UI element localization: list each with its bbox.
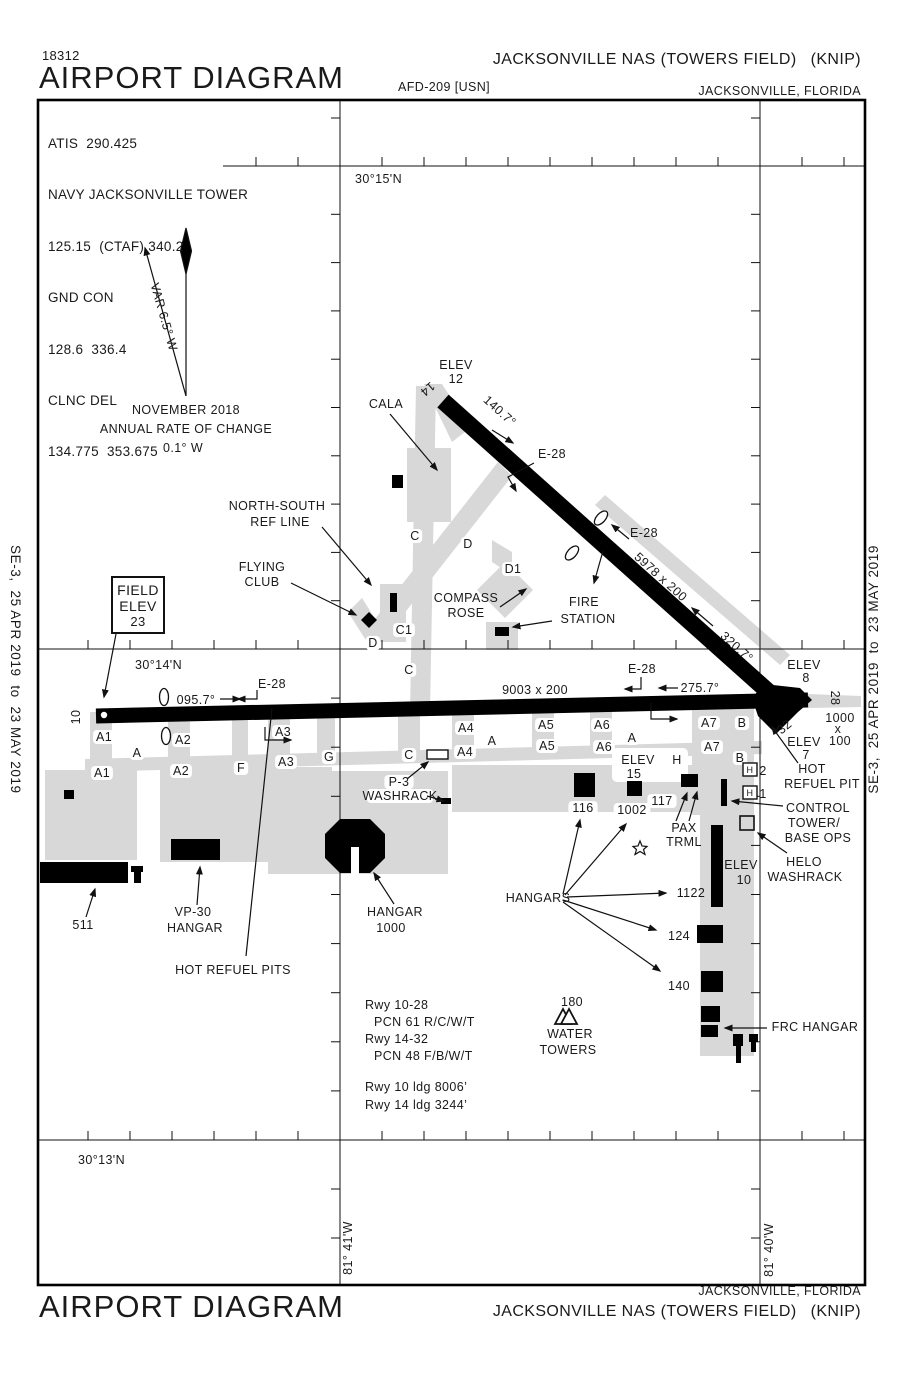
building-511 — [40, 862, 128, 883]
label-rwy-data-6: Rwy 14 ldg 3244’ — [365, 1098, 467, 1112]
footer-airport-name: JACKSONVILLE NAS (TOWERS FIELD) — [493, 1303, 797, 1320]
label-twy-d-s: D — [368, 636, 377, 650]
building-511-annex — [131, 866, 143, 872]
small-building — [64, 790, 74, 799]
label-twy-a7-u: A7 — [701, 716, 717, 730]
label-cala: CALA — [369, 397, 404, 411]
comm-line-clnc-label: CLNC DEL — [48, 393, 248, 408]
label-bldg-511: 511 — [72, 918, 93, 932]
label-elev8-2: 8 — [802, 671, 809, 685]
building-140 — [701, 971, 723, 992]
label-rwy-data-4: PCN 48 F/B/W/T — [374, 1049, 473, 1063]
label-rwy-data-5: Rwy 10 ldg 8006’ — [365, 1080, 467, 1094]
hangar-1000-arrow — [374, 873, 394, 904]
label-lat-30-15: 30°15'N — [355, 172, 402, 186]
label-ctl-3: BASE OPS — [785, 831, 851, 845]
comm-line-gnd-label: GND CON — [48, 290, 248, 305]
label-overrun-3: 100 — [829, 734, 851, 748]
label-hangar1000-2: 1000 — [376, 921, 405, 935]
label-rwy-num-28: 28 — [828, 691, 842, 706]
label-twy-c-n: C — [410, 529, 419, 543]
label-bldg-140: 140 — [668, 979, 690, 993]
label-ns-ref-2: REF LINE — [250, 515, 309, 529]
label-hdg-095: 095.7° — [177, 693, 216, 707]
label-hpad-2: 2 — [759, 764, 766, 778]
label-lon-81-40: 81° 40'W — [762, 1223, 776, 1277]
frc-hangar-building — [701, 1006, 720, 1022]
label-bldg-124: 124 — [668, 929, 690, 943]
hangars-arrow-116 — [563, 820, 580, 894]
label-p3-1: P-3 — [389, 775, 410, 789]
e28-west-bracket — [238, 690, 257, 699]
label-ctl-1: CONTROL — [786, 801, 850, 815]
label-lat-30-14: 30°14'N — [135, 658, 182, 672]
label-hpad-h1: H — [747, 788, 754, 798]
label-flying-club-2: CLUB — [245, 575, 280, 589]
label-wt-180: 180 — [561, 995, 583, 1009]
effective-dates-right: SE-3, 25 APR 2019 to 23 MAY 2019 — [866, 545, 881, 794]
label-twy-a5-l: A5 — [539, 739, 555, 753]
label-p3-2: WASHRACK — [363, 789, 438, 803]
comm-line-tower-name: NAVY JACKSONVILLE TOWER — [48, 187, 248, 202]
hangars-arrow-1122 — [567, 893, 666, 897]
label-bldg-1122: 1122 — [677, 886, 705, 900]
footer-airport-code: (KNIP) — [811, 1303, 861, 1320]
label-rwy-data-2: PCN 61 R/C/W/T — [374, 1015, 475, 1029]
airport-diagram-page: 18312 AIRPORT DIAGRAM AFD-209 [USN] JACK… — [0, 0, 903, 1386]
label-lon-81-41: 81° 41'W — [341, 1221, 355, 1275]
label-e28-rwy14-hi: E-28 — [538, 447, 566, 461]
label-compass-2: ROSE — [447, 606, 484, 620]
label-bldg-117: 117 — [651, 794, 672, 808]
footer-airport-title: JACKSONVILLE NAS (TOWERS FIELD)(KNIP) — [493, 1303, 861, 1321]
label-helo-1: HELO — [786, 855, 822, 869]
afd-reference: AFD-209 [USN] — [398, 80, 490, 94]
label-rwy-data-3: Rwy 14-32 — [365, 1032, 428, 1046]
label-twy-a4-l: A4 — [457, 745, 473, 759]
label-compass-1: COMPASS — [434, 591, 498, 605]
helo-washrack-arrow — [758, 833, 787, 853]
label-rwy-num-10: 10 — [69, 710, 83, 725]
label-twy-a3-l: A3 — [278, 755, 294, 769]
pier-structure — [733, 1034, 743, 1046]
label-hpad-h2: H — [747, 765, 754, 775]
label-twy-g: G — [324, 750, 334, 764]
label-twy-a3-u: A3 — [275, 725, 291, 739]
label-hdg-140: 140.7° — [481, 393, 519, 429]
label-hot-pit-2: REFUEL PIT — [784, 777, 860, 791]
label-twy-c-mid: C — [404, 663, 413, 677]
building-117 — [681, 774, 698, 787]
pier-structure2 — [736, 1046, 741, 1063]
label-twy-b-u: B — [738, 716, 747, 730]
vp30-arrow — [197, 867, 200, 905]
label-twy-a6-l: A6 — [596, 740, 612, 754]
label-elev7-1: ELEV — [787, 735, 821, 749]
label-wt-2: TOWERS — [539, 1043, 596, 1057]
e28-mid-bracket — [625, 677, 641, 689]
label-vp30-2: HANGAR — [167, 921, 223, 935]
label-frc-hangar: FRC HANGAR — [772, 1020, 859, 1034]
label-elev8-1: ELEV — [787, 658, 821, 672]
p3-washrack-pad — [427, 750, 448, 759]
label-elev12-2: 12 — [449, 372, 464, 386]
airport-name: JACKSONVILLE NAS (TOWERS FIELD) — [493, 51, 797, 68]
label-twy-c-s: C — [404, 748, 413, 762]
label-elev10-2: 10 — [737, 873, 752, 887]
label-ctl-2: TOWER/ — [788, 816, 840, 830]
label-hot-pits: HOT REFUEL PITS — [175, 963, 291, 977]
label-twy-f: F — [237, 761, 245, 775]
building-511-arrow — [86, 889, 95, 917]
label-twy-h: H — [672, 753, 681, 767]
label-hpad-1: 1 — [759, 787, 766, 801]
label-twy-a4-u: A4 — [458, 721, 474, 735]
beacon-star-icon — [633, 841, 647, 855]
airport-city: JACKSONVILLE, FLORIDA — [698, 84, 861, 98]
label-pax-2: TRML — [666, 835, 702, 849]
building-1002 — [627, 781, 642, 796]
comm-line-tower-freq: 125.15 (CTAF) 340.2 — [48, 239, 248, 254]
label-wt-1: WATER — [547, 1027, 593, 1041]
label-twy-a-m1: A — [488, 734, 497, 748]
label-elev7-2: 7 — [802, 748, 809, 762]
hangar-1000-notch — [351, 847, 359, 874]
label-bldg-1002: 1002 — [617, 803, 646, 817]
arresting-gear-hook-icon — [563, 544, 581, 563]
label-twy-a5-u: A5 — [538, 718, 554, 732]
building-124 — [697, 925, 723, 943]
label-twy-a2-u: A2 — [175, 733, 191, 747]
label-hot-pit-1: HOT — [798, 762, 826, 776]
label-field-elev-2: ELEV — [119, 598, 157, 614]
hangars-arrow-1002 — [565, 824, 626, 895]
airport-title: JACKSONVILLE NAS (TOWERS FIELD)(KNIP) — [493, 51, 861, 69]
c1-building — [390, 593, 397, 612]
label-e28-rwy14-lo: E-28 — [630, 526, 658, 540]
label-elev15-2: 15 — [627, 767, 642, 781]
label-bldg-116: 116 — [572, 801, 593, 815]
arresting-gear-hook-icon — [592, 509, 610, 528]
label-hangars: HANGARS — [506, 891, 571, 905]
hangars-arrow-140 — [563, 902, 660, 971]
label-rwy-data-1: Rwy 10-28 — [365, 998, 428, 1012]
airport-code: (KNIP) — [811, 51, 861, 68]
arresting-gear-hook-icon — [162, 728, 171, 745]
runway-10-threshold-dot — [101, 712, 107, 718]
label-twy-a-m2: A — [628, 731, 637, 745]
comm-frequencies: ATIS 290.425 NAVY JACKSONVILLE TOWER 125… — [48, 100, 248, 496]
label-field-elev-1: FIELD — [117, 582, 159, 598]
arresting-gear-hook-icon — [160, 689, 169, 706]
building-116 — [574, 773, 595, 797]
comm-line-gnd-freq: 128.6 336.4 — [48, 342, 248, 357]
footer-title: AIRPORT DIAGRAM — [39, 1289, 344, 1325]
label-fire-1: FIRE — [569, 595, 599, 609]
label-twy-d-n: D — [463, 537, 472, 551]
label-helo-2: WASHRACK — [768, 870, 843, 884]
fire-station-building — [495, 627, 509, 636]
label-vp30-1: VP-30 — [175, 905, 212, 919]
label-hangar1000-1: HANGAR — [367, 905, 423, 919]
label-field-elev-3: 23 — [130, 614, 145, 629]
label-elev12-1: ELEV — [439, 358, 473, 372]
cala-building — [392, 475, 403, 488]
label-twy-c1: C1 — [396, 623, 413, 637]
e28-rwy14-bracket3 — [594, 551, 603, 583]
label-e28-west: E-28 — [258, 677, 286, 691]
flying-club-arrow — [291, 583, 356, 615]
label-e28-mid: E-28 — [628, 662, 656, 676]
pier-structure4 — [751, 1042, 756, 1052]
pier-structure3 — [749, 1034, 758, 1042]
hangars-arrow-124 — [563, 900, 656, 930]
label-flying-club-1: FLYING — [239, 560, 286, 574]
building-511-annex2 — [134, 872, 141, 883]
label-ns-ref-1: NORTH-SOUTH — [229, 499, 326, 513]
label-pax-1: PAX — [671, 821, 697, 835]
label-twy-d1: D1 — [505, 562, 522, 576]
label-twy-a2-l: A2 — [173, 764, 189, 778]
effective-dates-left: SE-3, 25 APR 2019 to 23 MAY 2019 — [8, 545, 23, 794]
label-twy-a-w: A — [133, 746, 142, 760]
label-twy-b-l: B — [736, 751, 745, 765]
label-twy-a6-u: A6 — [594, 718, 610, 732]
label-elev10-1: ELEV — [724, 858, 758, 872]
footer-city: JACKSONVILLE, FLORIDA — [698, 1284, 861, 1298]
label-rwy1028-dim: 9003 x 200 — [502, 683, 568, 697]
label-hdg-275: 275.7° — [681, 681, 720, 695]
page-title: AIRPORT DIAGRAM — [39, 60, 344, 96]
label-lat-30-13: 30°13'N — [78, 1153, 125, 1167]
ns-ref-arrow — [322, 527, 371, 585]
vp30-hangar-building — [171, 839, 220, 860]
label-twy-a1-u: A1 — [96, 730, 112, 744]
label-elev15-1: ELEV — [621, 753, 655, 767]
label-fire-2: STATION — [560, 612, 615, 626]
label-twy-a1-l: A1 — [94, 766, 110, 780]
building-1122 — [711, 825, 723, 907]
label-twy-a7-l: A7 — [704, 740, 720, 754]
comm-line-clnc-freq: 134.775 353.675 — [48, 444, 248, 459]
control-tower-building — [721, 779, 727, 806]
frc-hangar-building2 — [701, 1025, 718, 1037]
fire-station-arrow — [513, 621, 552, 627]
field-elev-arrow — [104, 634, 116, 697]
comm-line-atis: ATIS 290.425 — [48, 136, 248, 151]
